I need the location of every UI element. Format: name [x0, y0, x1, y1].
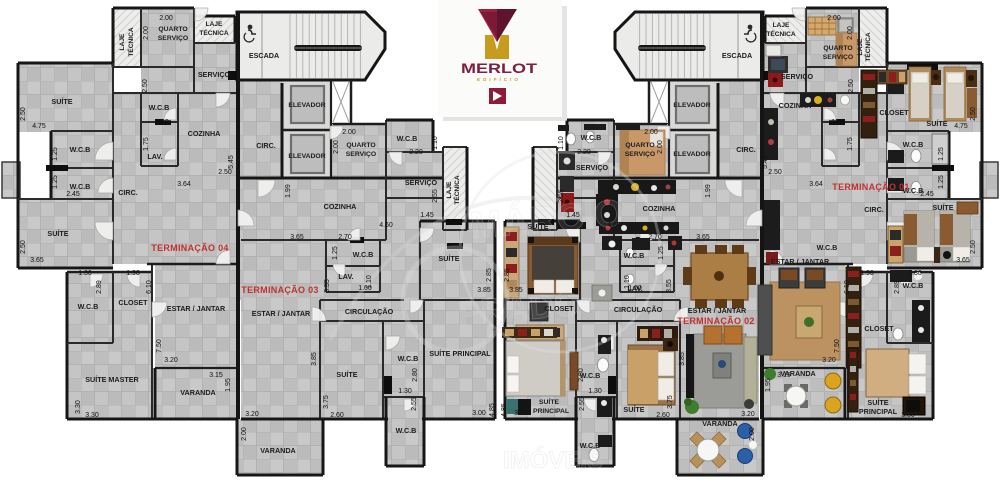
svg-text:W.C.B: W.C.B [70, 182, 91, 191]
svg-text:2.55: 2.55 [579, 397, 586, 411]
svg-text:4.85: 4.85 [501, 403, 508, 417]
svg-text:2.89: 2.89 [96, 280, 103, 294]
svg-text:2.50: 2.50 [970, 107, 977, 121]
svg-text:SUÍTE: SUÍTE [51, 97, 72, 106]
svg-text:TERMINAÇÃO 03: TERMINAÇÃO 03 [241, 285, 318, 295]
svg-text:SERVIÇO: SERVIÇO [158, 35, 188, 42]
svg-text:SERVIÇO: SERVIÇO [405, 178, 438, 187]
svg-text:ESTAR / JANTAR: ESTAR / JANTAR [252, 309, 311, 318]
svg-text:2.20: 2.20 [409, 149, 423, 156]
svg-text:1.10: 1.10 [558, 136, 565, 150]
svg-text:CLOSET: CLOSET [864, 324, 894, 333]
svg-text:3.65: 3.65 [956, 257, 970, 264]
svg-text:3.65: 3.65 [30, 257, 44, 264]
svg-text:W.C.B: W.C.B [78, 302, 99, 311]
svg-text:3.85: 3.85 [311, 352, 318, 366]
svg-text:1.75: 1.75 [143, 137, 150, 151]
svg-text:SUÍTE: SUÍTE [623, 405, 644, 414]
svg-text:QUARTO: QUARTO [158, 26, 187, 33]
svg-text:3.30: 3.30 [915, 400, 922, 414]
svg-text:1.25: 1.25 [938, 147, 945, 161]
svg-text:SERVIÇO: SERVIÇO [823, 54, 853, 61]
svg-text:5.45: 5.45 [228, 155, 235, 169]
svg-text:ELEVADOR: ELEVADOR [288, 102, 325, 109]
svg-text:SERVIÇO: SERVIÇO [576, 163, 609, 172]
svg-text:2.55: 2.55 [411, 397, 418, 411]
svg-text:4.60: 4.60 [607, 222, 621, 229]
svg-text:4.85: 4.85 [489, 403, 496, 417]
svg-text:2.50: 2.50 [848, 79, 855, 93]
svg-text:ELEVADOR: ELEVADOR [288, 153, 325, 160]
svg-text:LAJE: LAJE [857, 38, 864, 55]
svg-text:CLOSET: CLOSET [879, 108, 909, 117]
svg-text:1.99: 1.99 [285, 184, 292, 198]
svg-text:W.C.B: W.C.B [903, 140, 924, 149]
svg-text:2.50: 2.50 [970, 240, 977, 254]
svg-text:3.00: 3.00 [472, 410, 486, 417]
svg-text:W.C.B: W.C.B [580, 371, 601, 380]
svg-text:CIRCULAÇÃO: CIRCULAÇÃO [345, 307, 394, 316]
svg-text:ESCADA: ESCADA [722, 51, 752, 60]
svg-text:3.55: 3.55 [324, 279, 331, 293]
svg-text:W.C.B: W.C.B [397, 134, 418, 143]
svg-text:2.70: 2.70 [338, 234, 352, 241]
svg-text:W.C.B: W.C.B [396, 426, 417, 435]
svg-text:3.85: 3.85 [679, 352, 686, 366]
svg-text:CLOSET: CLOSET [544, 304, 574, 313]
svg-text:1.45: 1.45 [420, 212, 434, 219]
svg-text:3.85: 3.85 [509, 287, 523, 294]
svg-text:COZINHA: COZINHA [188, 129, 221, 138]
svg-text:SUÍTE PRINCIPAL: SUÍTE PRINCIPAL [429, 349, 491, 358]
svg-text:1.30: 1.30 [78, 270, 92, 277]
svg-text:MERLOT: MERLOT [461, 60, 538, 76]
svg-text:2.50: 2.50 [142, 79, 149, 93]
svg-text:2.00: 2.00 [241, 427, 248, 441]
svg-text:SERVIÇO: SERVIÇO [781, 72, 814, 81]
svg-text:1.10: 1.10 [432, 136, 439, 150]
svg-text:2.50: 2.50 [20, 107, 27, 121]
svg-text:2.89: 2.89 [894, 280, 901, 294]
svg-text:SUÍTE: SUÍTE [47, 229, 68, 238]
svg-text:6.10: 6.10 [146, 280, 153, 294]
svg-text:TÉCNICA: TÉCNICA [766, 29, 796, 38]
svg-text:TÉCNICA: TÉCNICA [863, 32, 872, 62]
svg-text:2.50: 2.50 [768, 169, 782, 176]
svg-text:2.00: 2.00 [333, 140, 340, 154]
svg-text:2.55: 2.55 [432, 189, 439, 203]
svg-text:VARANDA: VARANDA [780, 369, 815, 378]
svg-text:LAV.: LAV. [627, 284, 642, 293]
svg-text:LAJE: LAJE [119, 33, 126, 50]
svg-text:1.30: 1.30 [908, 270, 922, 277]
svg-text:LAJE: LAJE [773, 22, 790, 29]
svg-text:2.60: 2.60 [656, 412, 670, 419]
svg-text:1.60: 1.60 [358, 285, 372, 292]
svg-text:2.00: 2.00 [749, 427, 756, 441]
svg-text:3.20: 3.20 [741, 411, 755, 418]
svg-text:SUÍTE: SUÍTE [926, 119, 947, 128]
svg-text:2.00: 2.00 [342, 129, 356, 136]
svg-text:3.20: 3.20 [245, 411, 259, 418]
svg-text:5.45: 5.45 [762, 155, 769, 169]
svg-text:W.C.B: W.C.B [70, 145, 91, 154]
svg-text:3.64: 3.64 [177, 181, 191, 188]
svg-text:7.50: 7.50 [156, 339, 163, 353]
svg-text:1.10: 1.10 [155, 119, 169, 126]
svg-text:3.65: 3.65 [290, 234, 304, 241]
svg-text:3.55: 3.55 [666, 279, 673, 293]
svg-text:PRINCIPAL: PRINCIPAL [533, 408, 569, 415]
svg-text:COZINHA: COZINHA [324, 202, 357, 211]
svg-text:SERVIÇO: SERVIÇO [346, 151, 376, 158]
svg-text:W.C.B: W.C.B [581, 133, 602, 142]
svg-text:ELEVADOR: ELEVADOR [673, 151, 710, 158]
svg-text:3.65: 3.65 [696, 234, 710, 241]
svg-text:2.70: 2.70 [648, 234, 662, 241]
svg-text:3.75: 3.75 [667, 395, 674, 409]
svg-text:QUARTO: QUARTO [346, 142, 375, 149]
svg-text:1.25: 1.25 [52, 175, 59, 189]
svg-text:W.C.B: W.C.B [817, 243, 838, 252]
svg-text:2.20: 2.20 [577, 149, 591, 156]
svg-text:3.20: 3.20 [822, 357, 836, 364]
svg-text:SUÍTE: SUÍTE [438, 254, 459, 263]
svg-text:1.75: 1.75 [847, 137, 854, 151]
svg-text:SERVIÇO: SERVIÇO [625, 151, 655, 158]
svg-text:2.00: 2.00 [827, 15, 841, 22]
svg-text:3.00: 3.00 [514, 410, 528, 417]
svg-text:ESTAR / JANTAR: ESTAR / JANTAR [688, 306, 747, 315]
svg-text:1.10: 1.10 [831, 119, 845, 126]
svg-text:EDIFÍCIO: EDIFÍCIO [477, 75, 521, 82]
svg-text:2.85: 2.85 [486, 268, 493, 282]
svg-text:IMÓVEIS: IMÓVEIS [503, 446, 603, 474]
svg-text:3.30: 3.30 [901, 412, 915, 419]
svg-text:TÉCNICA: TÉCNICA [126, 27, 135, 57]
svg-text:CLOSET: CLOSET [118, 298, 148, 307]
svg-text:LAV.: LAV. [147, 152, 162, 161]
svg-text:3.75: 3.75 [323, 395, 330, 409]
svg-text:2.00: 2.00 [159, 15, 173, 22]
svg-text:1.45: 1.45 [566, 212, 580, 219]
svg-text:1.30: 1.30 [588, 388, 602, 395]
svg-text:SERVIÇO: SERVIÇO [198, 70, 231, 79]
svg-text:4.60: 4.60 [379, 222, 393, 229]
svg-text:SUÍTE MASTER: SUÍTE MASTER [85, 375, 139, 384]
svg-text:SUÍTE: SUÍTE [539, 397, 559, 406]
svg-text:1.99: 1.99 [705, 184, 712, 198]
svg-text:2.00: 2.00 [657, 140, 664, 154]
svg-text:2.60: 2.60 [330, 412, 344, 419]
svg-text:1.25: 1.25 [938, 175, 945, 189]
svg-text:W.C.B: W.C.B [398, 354, 419, 363]
svg-text:2.00: 2.00 [143, 26, 150, 40]
svg-text:2.50: 2.50 [20, 240, 27, 254]
svg-text:VARANDA: VARANDA [260, 446, 295, 455]
svg-text:3.15: 3.15 [209, 372, 223, 379]
svg-text:LAJE: LAJE [446, 181, 453, 198]
svg-text:SUÍTE: SUÍTE [527, 222, 548, 231]
svg-text:ESTAR / JANTAR: ESTAR / JANTAR [771, 257, 830, 266]
svg-text:W.C.B: W.C.B [353, 250, 374, 259]
svg-text:1.25: 1.25 [52, 147, 59, 161]
svg-text:1.90: 1.90 [126, 270, 140, 277]
svg-text:QUARTO: QUARTO [625, 142, 654, 149]
svg-text:3.64: 3.64 [809, 181, 823, 188]
svg-text:7.50: 7.50 [834, 339, 841, 353]
svg-text:3.30: 3.30 [75, 400, 82, 414]
svg-text:COZINHA: COZINHA [779, 101, 812, 110]
svg-text:SUÍTE: SUÍTE [932, 203, 953, 212]
svg-text:2.50: 2.50 [218, 169, 232, 176]
svg-text:3.20: 3.20 [164, 357, 178, 364]
svg-text:3.30: 3.30 [85, 412, 99, 419]
svg-text:CIRC.: CIRC. [256, 141, 276, 150]
svg-text:2.00: 2.00 [847, 26, 854, 40]
svg-text:CIRC.: CIRC. [118, 188, 138, 197]
svg-text:CIRC.: CIRC. [736, 145, 756, 154]
svg-text:VARANDA: VARANDA [180, 388, 215, 397]
svg-text:QUARTO: QUARTO [823, 45, 852, 52]
svg-text:SUÍTE: SUÍTE [336, 370, 357, 379]
svg-text:W.C.B: W.C.B [624, 251, 645, 260]
svg-text:2.55: 2.55 [558, 189, 565, 203]
svg-text:6.10: 6.10 [844, 280, 851, 294]
svg-text:TERMINAÇÃO 02: TERMINAÇÃO 02 [677, 316, 754, 326]
svg-text:1.25: 1.25 [658, 246, 665, 260]
svg-text:TÉCNICA: TÉCNICA [452, 175, 461, 205]
svg-text:3.85: 3.85 [477, 287, 491, 294]
svg-text:2.80: 2.80 [412, 368, 419, 382]
svg-text:ESCADA: ESCADA [249, 51, 279, 60]
svg-text:1.90: 1.90 [860, 270, 874, 277]
svg-text:ESTAR / JANTAR: ESTAR / JANTAR [167, 304, 226, 313]
svg-text:4.75: 4.75 [954, 123, 968, 130]
svg-text:W.C.B: W.C.B [149, 103, 170, 112]
svg-text:1.95: 1.95 [225, 378, 232, 392]
svg-text:W.C.B: W.C.B [903, 281, 924, 290]
svg-text:VARANDA: VARANDA [702, 419, 737, 428]
svg-text:LAJE: LAJE [206, 21, 223, 28]
svg-text:TERMINAÇÃO 04: TERMINAÇÃO 04 [151, 243, 228, 253]
svg-text:2.85: 2.85 [504, 268, 511, 282]
svg-text:4.75: 4.75 [32, 123, 46, 130]
svg-text:1.25: 1.25 [332, 246, 339, 260]
svg-text:CIRCULAÇÃO: CIRCULAÇÃO [614, 305, 663, 314]
svg-text:W.C.B: W.C.B [580, 441, 601, 450]
svg-text:PRINCIPAL: PRINCIPAL [859, 407, 898, 416]
svg-text:TERMINAÇÃO 01: TERMINAÇÃO 01 [832, 182, 909, 192]
svg-text:ELEVADOR: ELEVADOR [673, 102, 710, 109]
svg-text:SUÍTE: SUÍTE [867, 398, 888, 407]
svg-text:COZINHA: COZINHA [643, 204, 676, 213]
svg-text:1.95: 1.95 [765, 378, 772, 392]
svg-text:2.00: 2.00 [644, 129, 658, 136]
svg-text:1.30: 1.30 [398, 388, 412, 395]
svg-text:TÉCNICA: TÉCNICA [199, 28, 229, 37]
svg-text:CIRC.: CIRC. [864, 205, 884, 214]
svg-text:LAV.: LAV. [338, 272, 353, 281]
svg-text:2.45: 2.45 [66, 191, 80, 198]
